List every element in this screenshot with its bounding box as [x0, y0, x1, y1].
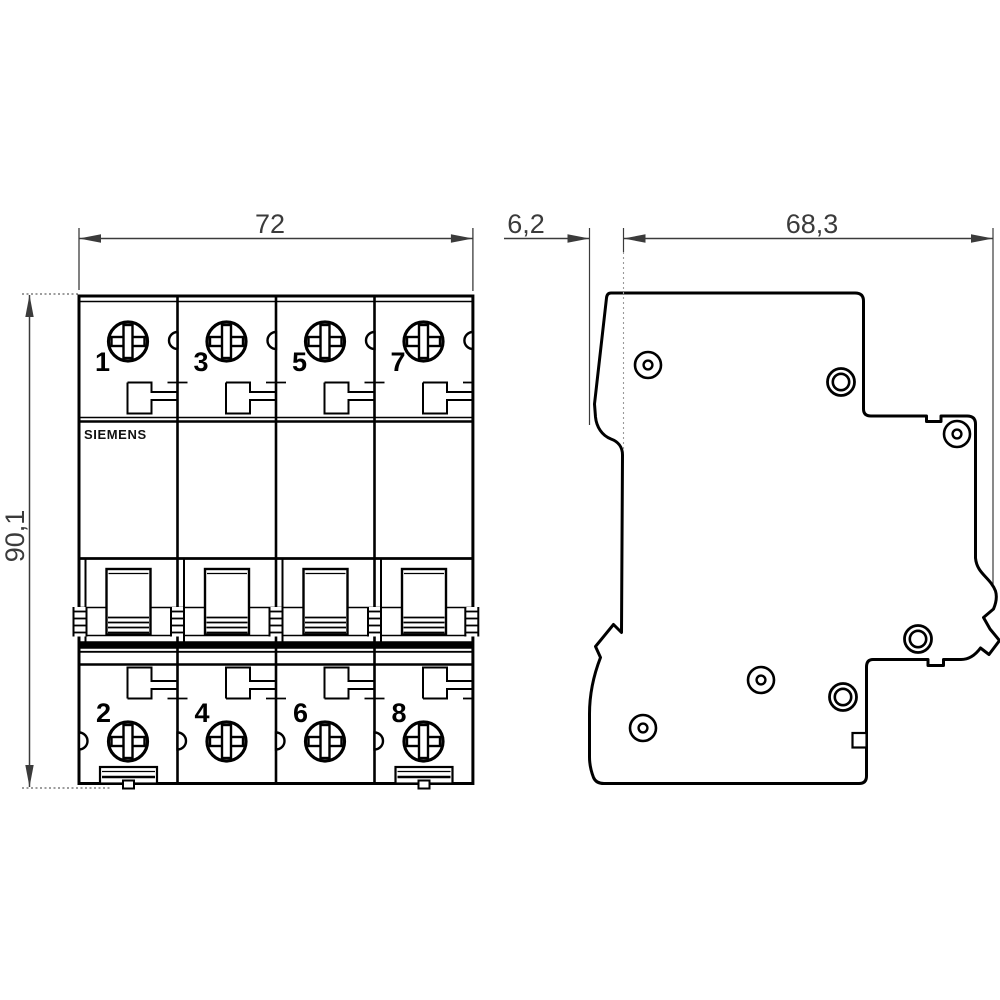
dim-label-height: 90,1 — [0, 510, 30, 563]
pole-number-8: 8 — [392, 698, 407, 728]
rivet-icon — [635, 352, 661, 378]
pole-number-5: 5 — [292, 347, 307, 377]
pole-number-6: 6 — [293, 698, 308, 728]
dim-label-front-depth: 6,2 — [507, 209, 545, 239]
pole-number-1: 1 — [95, 347, 110, 377]
dim-label-width: 72 — [255, 209, 285, 239]
dim-front-width — [22, 228, 473, 294]
brand-label: SIEMENS — [84, 427, 147, 442]
mcb-dimension-drawing: 1 3 5 7 2 4 6 8 SIEMENS 72 90,1 — [0, 0, 1000, 1000]
side-view — [590, 252, 1000, 784]
pole-number-4: 4 — [195, 698, 210, 728]
pole-number-7: 7 — [391, 347, 406, 377]
dim-label-body-depth: 68,3 — [786, 209, 839, 239]
pole-number-3: 3 — [194, 347, 209, 377]
pole-number-2: 2 — [96, 698, 111, 728]
drawing-canvas: 1 3 5 7 2 4 6 8 SIEMENS 72 90,1 — [0, 0, 1000, 1000]
front-view: 1 3 5 7 2 4 6 8 SIEMENS — [74, 296, 479, 789]
edge-notch — [853, 733, 867, 748]
screw-icon — [109, 322, 148, 361]
